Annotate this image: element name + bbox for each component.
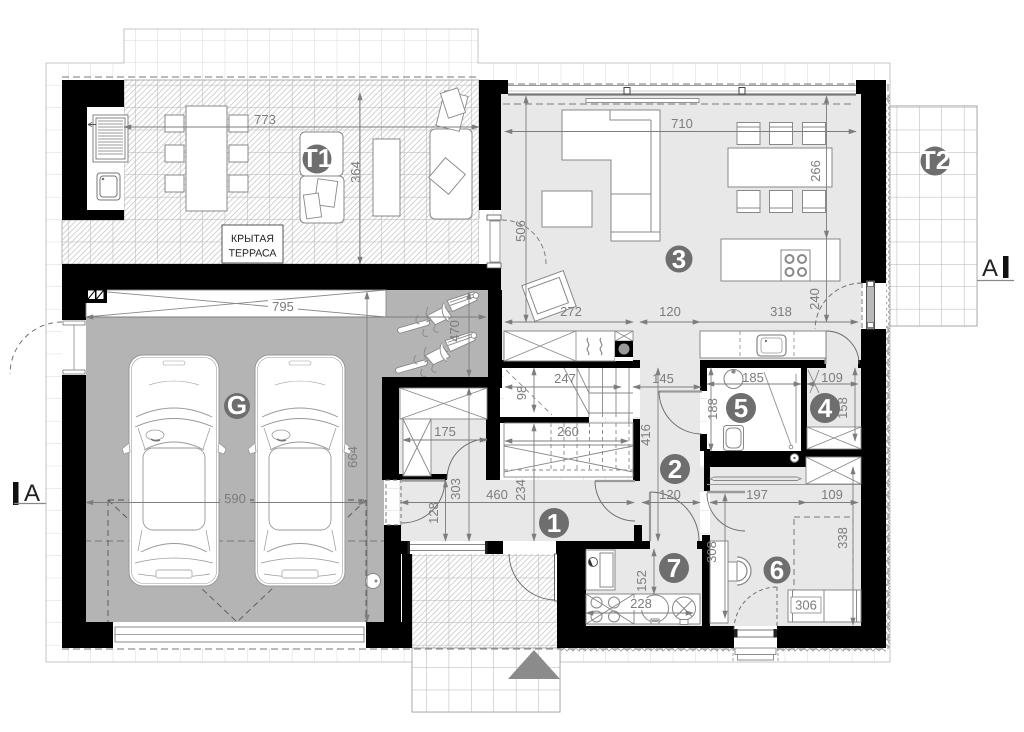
svg-text:152: 152 <box>634 570 649 592</box>
svg-text:460: 460 <box>486 487 508 502</box>
svg-text:120: 120 <box>659 304 681 319</box>
svg-text:303: 303 <box>448 478 463 500</box>
svg-text:G: G <box>227 390 247 420</box>
svg-text:664: 664 <box>345 446 360 468</box>
svg-text:128: 128 <box>426 502 441 524</box>
svg-text:2: 2 <box>668 454 682 484</box>
svg-text:6: 6 <box>770 555 784 585</box>
svg-text:197: 197 <box>746 487 768 502</box>
svg-text:145: 145 <box>652 371 674 386</box>
svg-text:266: 266 <box>808 160 823 182</box>
svg-text:318: 318 <box>770 304 792 319</box>
svg-text:338: 338 <box>835 527 850 549</box>
svg-text:308: 308 <box>704 541 719 563</box>
svg-text:1: 1 <box>547 508 561 538</box>
svg-text:260: 260 <box>557 424 579 439</box>
svg-text:364: 364 <box>348 161 363 183</box>
svg-text:5: 5 <box>734 393 748 423</box>
svg-text:795: 795 <box>272 299 294 314</box>
svg-text:3: 3 <box>672 244 686 274</box>
svg-text:ТЕРРАСА: ТЕРРАСА <box>229 248 277 260</box>
svg-text:506: 506 <box>513 220 528 242</box>
svg-text:175: 175 <box>434 424 456 439</box>
svg-text:109: 109 <box>821 370 843 385</box>
svg-text:590: 590 <box>224 491 246 506</box>
svg-text:120: 120 <box>659 487 681 502</box>
svg-text:470: 470 <box>447 320 462 342</box>
svg-text:109: 109 <box>821 487 843 502</box>
svg-text:7: 7 <box>667 553 681 583</box>
svg-text:КРЫТАЯ: КРЫТАЯ <box>231 233 274 245</box>
svg-text:A: A <box>982 255 998 282</box>
svg-text:T2: T2 <box>920 145 950 175</box>
svg-text:710: 710 <box>671 116 693 131</box>
svg-text:234: 234 <box>513 479 528 501</box>
svg-text:228: 228 <box>630 596 652 611</box>
svg-text:416: 416 <box>638 424 653 446</box>
svg-text:240: 240 <box>807 288 822 310</box>
svg-text:306: 306 <box>795 598 817 613</box>
svg-text:247: 247 <box>554 371 576 386</box>
svg-text:T1: T1 <box>302 143 332 173</box>
svg-text:4: 4 <box>818 393 833 423</box>
svg-text:272: 272 <box>560 304 582 319</box>
svg-text:185: 185 <box>742 370 764 385</box>
svg-text:773: 773 <box>254 112 276 127</box>
svg-text:98: 98 <box>514 386 529 400</box>
svg-text:188: 188 <box>705 398 720 420</box>
